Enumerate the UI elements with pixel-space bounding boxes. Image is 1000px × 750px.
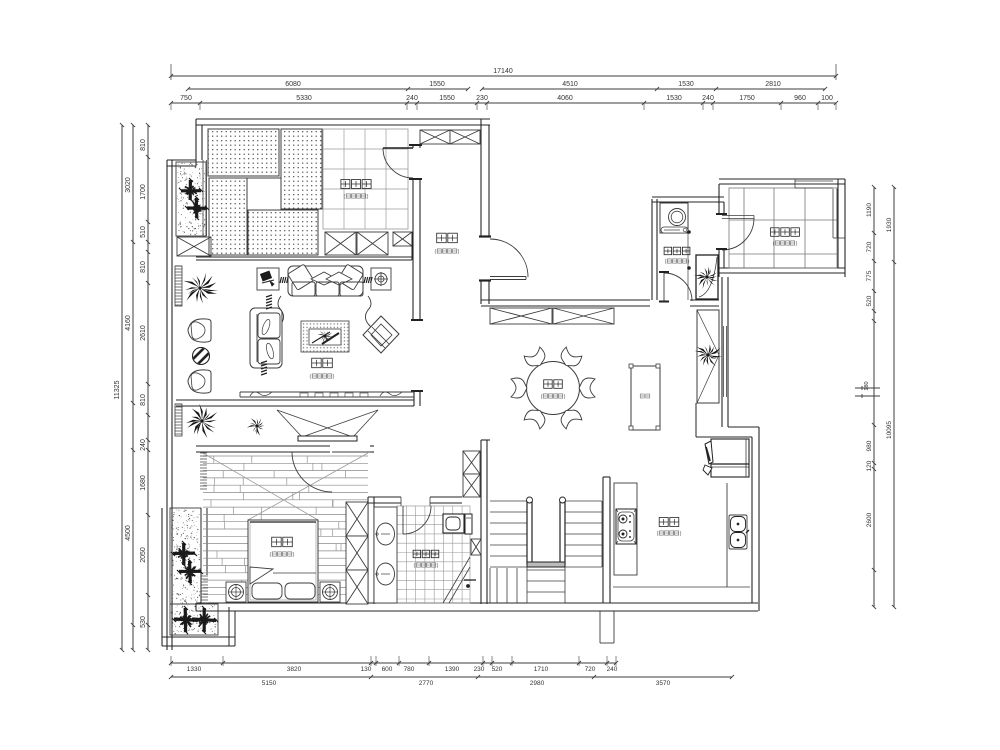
- svg-text:2980: 2980: [530, 680, 545, 687]
- svg-text:(: (: [541, 394, 543, 400]
- svg-text:4160: 4160: [125, 315, 132, 331]
- svg-text:720: 720: [585, 666, 596, 673]
- svg-text:980: 980: [866, 440, 873, 451]
- svg-text:(: (: [665, 259, 667, 265]
- svg-text:750: 750: [180, 95, 192, 102]
- svg-text:2600: 2600: [866, 512, 873, 527]
- svg-text:130: 130: [361, 666, 372, 673]
- svg-text:520: 520: [492, 666, 503, 673]
- svg-text:5330: 5330: [296, 95, 312, 102]
- svg-text:(: (: [773, 241, 775, 247]
- svg-text:180: 180: [864, 381, 870, 390]
- svg-text:3020: 3020: [125, 177, 132, 193]
- svg-text:4060: 4060: [557, 95, 573, 102]
- svg-text:10095: 10095: [886, 421, 893, 439]
- svg-text:810: 810: [140, 139, 147, 151]
- svg-text:4500: 4500: [125, 525, 132, 541]
- svg-text:1930: 1930: [886, 217, 893, 232]
- svg-text:520: 520: [866, 295, 873, 306]
- svg-text:810: 810: [140, 261, 147, 273]
- svg-text:230: 230: [476, 95, 488, 102]
- svg-text:(: (: [413, 563, 415, 569]
- svg-text:1680: 1680: [140, 475, 147, 491]
- svg-text:5150: 5150: [262, 680, 277, 687]
- svg-text:): ): [437, 563, 439, 569]
- svg-text:): ): [293, 552, 295, 558]
- svg-text:): ): [680, 531, 682, 537]
- svg-text:600: 600: [382, 666, 393, 673]
- svg-text:4510: 4510: [562, 81, 578, 88]
- svg-text:1550: 1550: [429, 81, 445, 88]
- svg-text:): ): [564, 394, 566, 400]
- svg-text:100: 100: [821, 95, 833, 102]
- svg-text:775: 775: [866, 270, 873, 281]
- svg-text:2770: 2770: [419, 680, 434, 687]
- svg-text:11325: 11325: [114, 380, 121, 399]
- svg-text:2810: 2810: [765, 81, 781, 88]
- svg-text:1550: 1550: [439, 95, 455, 102]
- svg-text:810: 810: [140, 394, 147, 406]
- svg-text:1700: 1700: [140, 184, 147, 200]
- svg-text:1530: 1530: [678, 81, 694, 88]
- svg-text:3570: 3570: [656, 680, 671, 687]
- svg-text:(: (: [434, 249, 436, 255]
- svg-text:(: (: [269, 552, 271, 558]
- svg-text:(: (: [343, 194, 345, 200]
- svg-text:17140: 17140: [493, 68, 513, 75]
- svg-text:1330: 1330: [187, 666, 202, 673]
- svg-text:1190: 1190: [866, 203, 873, 217]
- svg-text:): ): [333, 374, 335, 380]
- svg-text:240: 240: [140, 439, 147, 451]
- svg-text:2050: 2050: [140, 547, 147, 563]
- svg-text:): ): [688, 259, 690, 265]
- svg-text:): ): [458, 249, 460, 255]
- svg-text:230: 230: [474, 666, 485, 673]
- svg-text:): ): [367, 194, 369, 200]
- svg-text:1390: 1390: [445, 666, 460, 673]
- svg-text:240: 240: [607, 666, 618, 673]
- svg-text:1530: 1530: [666, 95, 682, 102]
- svg-text:(: (: [657, 531, 659, 537]
- svg-text:6080: 6080: [285, 81, 301, 88]
- svg-text:240: 240: [406, 95, 418, 102]
- svg-text:960: 960: [794, 95, 806, 102]
- svg-text:120: 120: [866, 460, 873, 471]
- svg-text:1750: 1750: [739, 95, 755, 102]
- svg-text:720: 720: [866, 241, 873, 252]
- svg-text:1710: 1710: [534, 666, 549, 673]
- svg-text:(: (: [309, 374, 311, 380]
- svg-text:510: 510: [140, 226, 147, 238]
- svg-text:3820: 3820: [287, 666, 302, 673]
- svg-text:2610: 2610: [140, 325, 147, 341]
- svg-text:240: 240: [702, 95, 714, 102]
- svg-text:): ): [796, 241, 798, 247]
- svg-text:780: 780: [404, 666, 415, 673]
- svg-text:530: 530: [140, 616, 147, 628]
